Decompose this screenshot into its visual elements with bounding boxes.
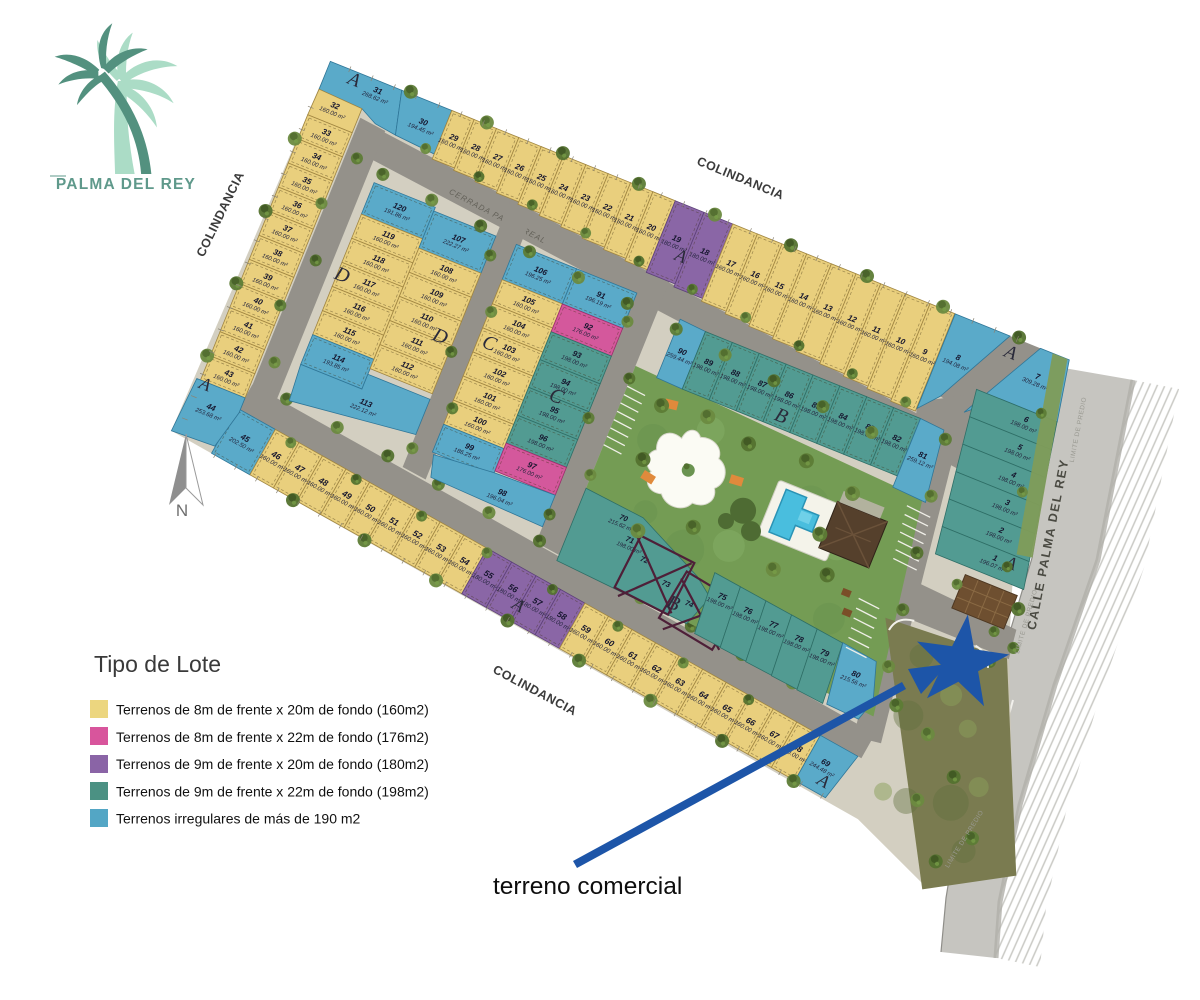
svg-text:terreno comercial: terreno comercial xyxy=(493,873,682,900)
svg-text:Terrenos de 8m de frente x 20m: Terrenos de 8m de frente x 20m de fondo … xyxy=(116,702,429,718)
svg-text:PALMA DEL REY: PALMA DEL REY xyxy=(56,176,196,193)
svg-text:Tipo de Lote: Tipo de Lote xyxy=(94,651,221,677)
svg-text:Terrenos de 9m de frente x 20m: Terrenos de 9m de frente x 20m de fondo … xyxy=(116,756,429,772)
svg-text:N: N xyxy=(176,501,188,520)
svg-text:Terrenos irregulares de más de: Terrenos irregulares de más de 190 m2 xyxy=(116,811,361,827)
svg-text:Terrenos de 9m de frente x 22m: Terrenos de 9m de frente x 22m de fondo … xyxy=(116,783,429,799)
svg-text:Terrenos de 8m de frente x 22m: Terrenos de 8m de frente x 22m de fondo … xyxy=(116,729,429,745)
